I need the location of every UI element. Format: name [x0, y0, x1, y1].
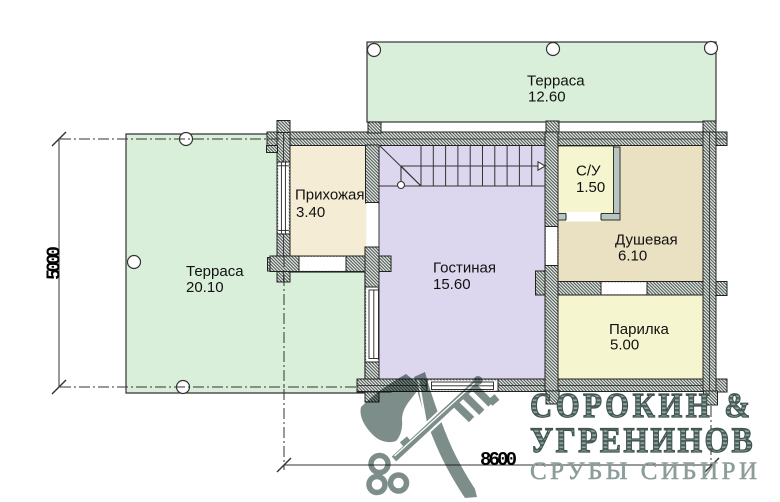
svg-text:С/У: С/У — [576, 163, 601, 180]
svg-text:Терраса: Терраса — [527, 73, 585, 90]
svg-text:12.60: 12.60 — [528, 89, 566, 106]
svg-text:6.10: 6.10 — [618, 248, 647, 265]
svg-text:20.10: 20.10 — [186, 279, 224, 296]
svg-text:5.00: 5.00 — [610, 337, 639, 354]
svg-text:15.60: 15.60 — [433, 276, 471, 293]
svg-text:3.40: 3.40 — [296, 204, 325, 221]
svg-text:Гостиная: Гостиная — [433, 260, 496, 277]
svg-text:8600: 8600 — [480, 449, 517, 471]
svg-text:Парилка: Парилка — [609, 321, 669, 338]
svg-text:Терраса: Терраса — [186, 263, 244, 280]
svg-text:5000: 5000 — [44, 246, 66, 280]
svg-text:УГРЕНИНОВ: УГРЕНИНОВ — [530, 421, 753, 460]
svg-text:СОРОКИН &: СОРОКИН & — [530, 387, 750, 425]
svg-text:1.50: 1.50 — [576, 179, 605, 196]
svg-text:Прихожая: Прихожая — [295, 187, 365, 204]
svg-text:Душевая: Душевая — [615, 232, 678, 249]
